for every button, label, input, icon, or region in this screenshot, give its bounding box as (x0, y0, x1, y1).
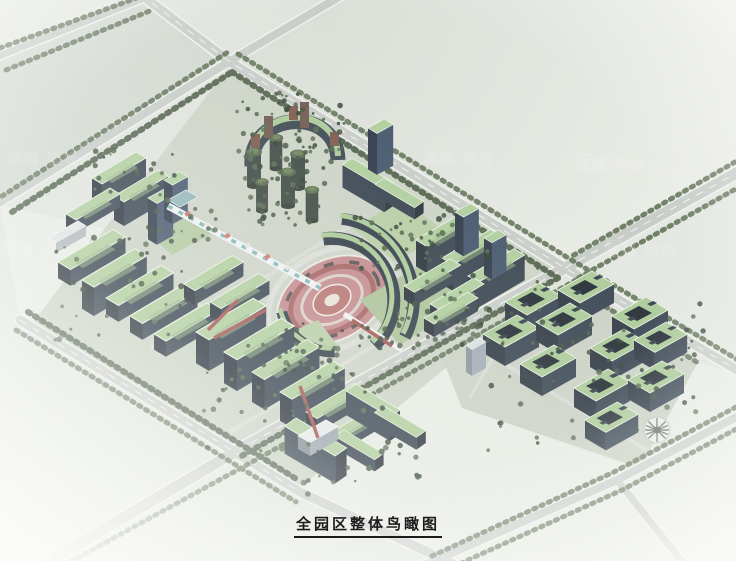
vignette (0, 0, 736, 561)
aerial-render-image: 自播 模板 自播 模板 自播 模板 自播 模板 自播 模板 全园区整体鸟瞰图 (0, 0, 736, 561)
masterplan-rendering (0, 0, 736, 561)
